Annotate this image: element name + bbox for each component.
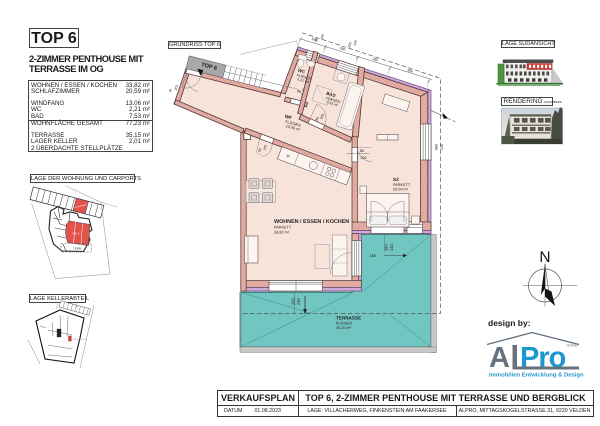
svg-text:TERRASSE: TERRASSE bbox=[336, 316, 361, 321]
svg-text:TOP 6 KELLER: TOP 6 KELLER bbox=[73, 338, 87, 341]
svg-text:WOHNEN / ESSEN / KOCHEN: WOHNEN / ESSEN / KOCHEN bbox=[274, 219, 349, 225]
svg-text:A: A bbox=[489, 342, 510, 374]
svg-text:80: 80 bbox=[360, 149, 364, 153]
svg-text:980: 980 bbox=[435, 144, 439, 150]
svg-text:306: 306 bbox=[407, 68, 414, 74]
svg-text:201: 201 bbox=[174, 84, 180, 91]
svg-text:N: N bbox=[539, 249, 550, 266]
svg-text:140: 140 bbox=[353, 40, 359, 47]
svg-text:230: 230 bbox=[296, 298, 301, 305]
svg-text:140: 140 bbox=[440, 144, 444, 150]
svg-text:Immobilien Entwicklung & Desig: Immobilien Entwicklung & Design bbox=[489, 371, 584, 378]
svg-text:20,59 m²: 20,59 m² bbox=[393, 188, 409, 192]
svg-text:PARKETT: PARKETT bbox=[274, 226, 292, 230]
svg-text:140: 140 bbox=[389, 244, 394, 251]
svg-text:35,15 m²: 35,15 m² bbox=[336, 326, 352, 330]
svg-text:180: 180 bbox=[384, 244, 389, 251]
svg-text:TERR.: TERR. bbox=[73, 247, 82, 251]
svg-text:260: 260 bbox=[339, 46, 346, 52]
svg-text:GmbH: GmbH bbox=[567, 344, 578, 348]
svg-text:SZ: SZ bbox=[393, 177, 399, 182]
svg-text:33,82 m²: 33,82 m² bbox=[274, 230, 290, 234]
svg-text:FLIESEN: FLIESEN bbox=[336, 322, 352, 326]
svg-text:91: 91 bbox=[168, 88, 173, 93]
svg-text:140: 140 bbox=[320, 34, 326, 41]
svg-text:200: 200 bbox=[361, 156, 367, 160]
svg-text:160: 160 bbox=[370, 253, 377, 258]
svg-text:PARKETT: PARKETT bbox=[393, 183, 411, 187]
svg-text:TOP 6: TOP 6 bbox=[72, 233, 80, 236]
